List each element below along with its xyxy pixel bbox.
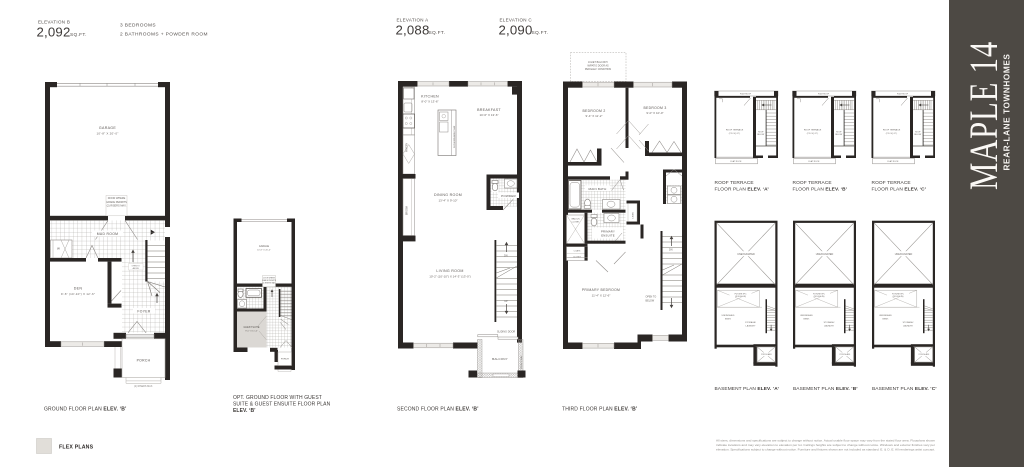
svg-text:OPT. GROUND FLOOR WITH GUEST: OPT. GROUND FLOOR WITH GUEST — [233, 395, 322, 401]
svg-text:FLOOR PLAN ELEV. ‘B’: FLOOR PLAN ELEV. ‘B’ — [793, 187, 848, 193]
svg-text:11'-4" X 12'-6": 11'-4" X 12'-6" — [592, 294, 611, 298]
svg-text:W: W — [57, 247, 60, 251]
svg-text:BALCONY: BALCONY — [492, 357, 508, 361]
svg-text:ENSUITE: ENSUITE — [601, 234, 615, 238]
svg-text:ELEV. ‘B’: ELEV. ‘B’ — [233, 408, 256, 414]
svg-text:10'-8" X 20'-0": 10'-8" X 20'-0" — [97, 132, 119, 136]
svg-text:UP: UP — [504, 300, 508, 303]
svg-text:SUITE & GUEST ENSUITE FLOOR PL: SUITE & GUEST ENSUITE FLOOR PLAN — [233, 402, 331, 408]
svg-text:(2) RISERS MAX.: (2) RISERS MAX. — [262, 282, 276, 285]
svg-text:OPEN TO: OPEN TO — [646, 296, 657, 299]
svg-text:PRIVACY WALL: PRIVACY WALL — [520, 355, 523, 369]
svg-text:PRIMARY BEDROOM: PRIMARY BEDROOM — [582, 288, 620, 292]
svg-text:BASEMENT PLAN ELEV. ‘A’: BASEMENT PLAN ELEV. ‘A’ — [715, 386, 779, 392]
svg-text:PANTRY: PANTRY — [406, 142, 409, 152]
svg-text:SQ.FT.: SQ.FT. — [532, 30, 549, 36]
svg-text:PORCH: PORCH — [281, 359, 289, 361]
svg-text:10'-8" X 20'-0": 10'-8" X 20'-0" — [257, 249, 271, 251]
svg-text:SLIDING DOOR: SLIDING DOOR — [497, 331, 515, 334]
svg-text:BASEMENT PLAN ELEV. ‘C’: BASEMENT PLAN ELEV. ‘C’ — [872, 386, 937, 392]
svg-text:ABOVE: ABOVE — [133, 267, 140, 270]
svg-text:BASEMENT PLAN ELEV. ‘B’: BASEMENT PLAN ELEV. ‘B’ — [793, 386, 858, 392]
svg-text:SQ.FT.: SQ.FT. — [70, 32, 87, 38]
svg-text:All sizes, dimensions and spec: All sizes, dimensions and specifications… — [716, 439, 935, 443]
svg-text:indicate locations and may var: indicate locations and may vary elevatio… — [716, 443, 935, 447]
svg-text:SECOND FLOOR PLAN ELEV. ‘B’: SECOND FLOOR PLAN ELEV. ‘B’ — [397, 407, 479, 413]
svg-text:GARAGE: GARAGE — [99, 126, 116, 130]
svg-text:BROOM: BROOM — [407, 206, 409, 215]
svg-text:BEDROOM 2: BEDROOM 2 — [582, 109, 605, 113]
svg-text:(2) RISERS MAX.: (2) RISERS MAX. — [134, 385, 153, 388]
svg-text:MAPLE 14: MAPLE 14 — [961, 41, 1006, 190]
svg-text:FLUSH BREAKFAST BAR: FLUSH BREAKFAST BAR — [453, 125, 456, 148]
svg-text:2,092: 2,092 — [37, 25, 71, 40]
svg-text:COATS: COATS — [574, 250, 581, 253]
svg-text:GROUND FLOOR PLAN ELEV. ‘B’: GROUND FLOOR PLAN ELEV. ‘B’ — [44, 407, 127, 413]
svg-text:ROOF TERRACE: ROOF TERRACE — [715, 180, 754, 186]
svg-text:SQ.FT.: SQ.FT. — [429, 30, 446, 36]
svg-text:WALK-IN: WALK-IN — [571, 218, 580, 221]
svg-text:DN: DN — [504, 255, 508, 258]
svg-text:2,088: 2,088 — [396, 23, 430, 38]
svg-text:PORCH: PORCH — [137, 359, 151, 363]
svg-text:PER ELEV. CONDITION: PER ELEV. CONDITION — [585, 68, 611, 71]
svg-text:FLOOR PLAN ELEV. ‘C’: FLOOR PLAN ELEV. ‘C’ — [872, 187, 927, 193]
svg-text:9'-4" X 11'-2": 9'-4" X 11'-2" — [585, 114, 602, 118]
svg-text:DN: DN — [669, 249, 673, 252]
svg-text:GRADE PERMITS: GRADE PERMITS — [106, 201, 127, 204]
svg-text:3 BEDROOMS: 3 BEDROOMS — [120, 23, 156, 29]
svg-text:BELOW: BELOW — [646, 300, 655, 303]
svg-text:REAR-LANE TOWNHOMES: REAR-LANE TOWNHOMES — [1002, 54, 1012, 171]
svg-text:KITCHEN: KITCHEN — [421, 95, 439, 99]
svg-text:10'-2" (10'-10") X 14'-3" (13: 10'-2" (10'-10") X 14'-3" (13'-0") — [429, 275, 471, 279]
svg-text:ROOF TERRACE: ROOF TERRACE — [872, 180, 911, 186]
svg-text:CLOSET: CLOSET — [571, 221, 580, 223]
svg-text:LINEN: LINEN — [633, 212, 635, 219]
svg-text:elevation. Specifications subj: elevation. Specifications subject to cha… — [716, 448, 935, 452]
svg-text:2,090: 2,090 — [499, 23, 533, 38]
svg-text:BEDROOM 3: BEDROOM 3 — [643, 106, 666, 110]
svg-text:13'-4" X 9'-10": 13'-4" X 9'-10" — [439, 199, 458, 203]
svg-text:8'-0" X 13'-6": 8'-0" X 13'-6" — [421, 100, 438, 104]
svg-text:OPEN TO: OPEN TO — [132, 265, 141, 267]
svg-text:DOOR WHERE: DOOR WHERE — [108, 197, 126, 200]
svg-text:FLEX PLANS: FLEX PLANS — [59, 445, 94, 451]
svg-text:POWDER: POWDER — [501, 194, 516, 198]
svg-text:MAIN BATH: MAIN BATH — [589, 187, 607, 191]
svg-text:(2) RISERS MAX.: (2) RISERS MAX. — [107, 205, 127, 208]
svg-text:DEN: DEN — [74, 287, 83, 291]
svg-text:2 BATHROOMS + POWDER ROOM: 2 BATHROOMS + POWDER ROOM — [120, 32, 208, 38]
svg-text:DINING ROOM: DINING ROOM — [434, 193, 462, 197]
svg-text:9'-6" (10'-10") X 12'-6": 9'-6" (10'-10") X 12'-6" — [61, 292, 95, 296]
svg-text:FLOOR PLAN ELEV. ‘A’: FLOOR PLAN ELEV. ‘A’ — [715, 187, 769, 193]
svg-text:BREAKFAST: BREAKFAST — [477, 108, 501, 112]
svg-text:GARAGE: GARAGE — [259, 245, 270, 248]
svg-text:9'-0" X 11'-6": 9'-0" X 11'-6" — [245, 330, 258, 332]
svg-text:MUD ROOM: MUD ROOM — [97, 232, 119, 236]
svg-text:9'-0" X 10'-0": 9'-0" X 10'-0" — [646, 111, 663, 115]
svg-text:FOYER: FOYER — [137, 310, 150, 314]
svg-text:ROOF TERRACE: ROOF TERRACE — [793, 180, 832, 186]
svg-text:GUEST SUITE: GUEST SUITE — [244, 326, 260, 329]
svg-text:THIRD FLOOR PLAN ELEV. ‘B’: THIRD FLOOR PLAN ELEV. ‘B’ — [562, 407, 638, 413]
svg-text:10'-6" X 13'-6": 10'-6" X 13'-6" — [480, 113, 499, 117]
svg-text:LIVING ROOM: LIVING ROOM — [436, 269, 463, 273]
